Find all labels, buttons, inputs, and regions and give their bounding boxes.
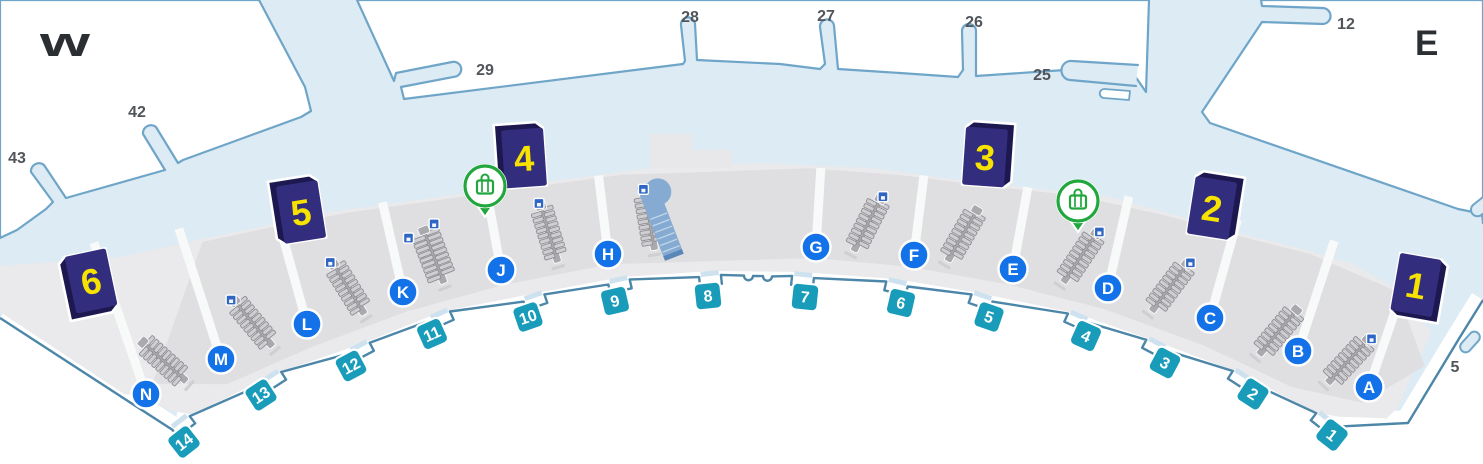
svg-text:K: K: [397, 283, 410, 302]
svg-text:12: 12: [1337, 16, 1355, 33]
svg-text:M: M: [214, 350, 228, 369]
svg-text:3: 3: [974, 136, 997, 178]
svg-text:F: F: [909, 246, 919, 265]
svg-text:B: B: [1292, 342, 1304, 361]
svg-text:42: 42: [128, 104, 146, 121]
svg-text:C: C: [1204, 309, 1216, 328]
svg-text:26: 26: [965, 14, 983, 31]
svg-text:7: 7: [800, 289, 811, 307]
svg-text:L: L: [302, 315, 312, 334]
svg-text:J: J: [496, 261, 505, 280]
svg-text:D: D: [1102, 279, 1114, 298]
svg-text:A: A: [1363, 378, 1375, 397]
svg-text:25: 25: [1033, 67, 1051, 84]
svg-text:H: H: [602, 245, 614, 264]
svg-text:N: N: [140, 385, 152, 404]
svg-text:8: 8: [703, 288, 714, 306]
svg-text:27: 27: [817, 8, 835, 25]
svg-text:28: 28: [681, 9, 699, 26]
svg-text:43: 43: [8, 150, 26, 167]
svg-text:29: 29: [476, 62, 494, 79]
svg-text:4: 4: [513, 137, 536, 179]
svg-text:w: w: [38, 18, 90, 65]
svg-text:E: E: [1415, 24, 1438, 63]
svg-text:5: 5: [1451, 359, 1460, 376]
svg-text:G: G: [809, 238, 822, 257]
svg-text:E: E: [1007, 260, 1018, 279]
